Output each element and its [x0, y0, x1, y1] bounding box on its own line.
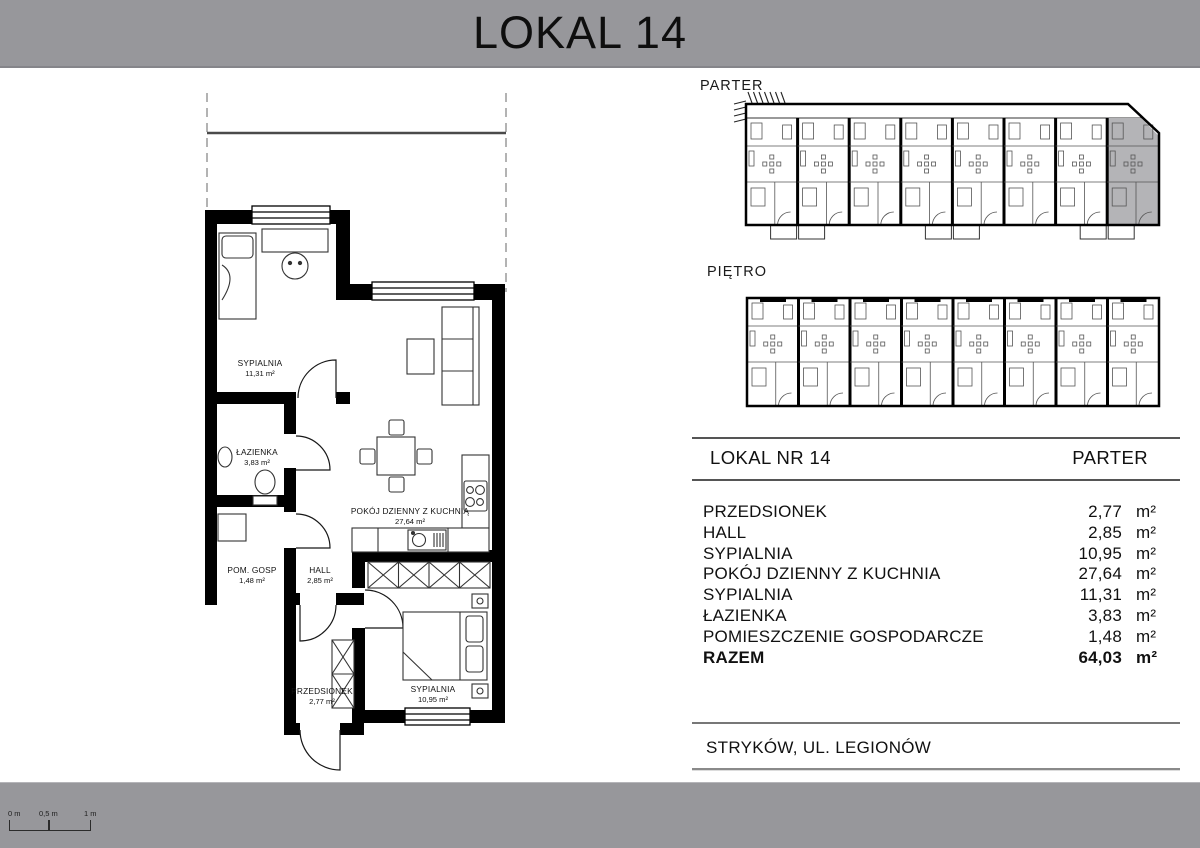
svg-text:27,64 m²: 27,64 m² [395, 517, 425, 526]
parter-overview-plan [690, 75, 1190, 260]
table-header-rule [692, 479, 1180, 481]
room-label-lazienka: ŁAZIENKA [236, 447, 278, 457]
page-title: LOKAL 14 [0, 7, 1160, 59]
room-label-przedsionek: PRZEDSIONEK [291, 686, 353, 696]
room-label-sypialnia-2: SYPIALNIA [411, 684, 456, 694]
table-row: SYPIALNIA 11,31 m² [690, 585, 1180, 606]
room-label-pom-gosp: POM. GOSP [227, 565, 277, 575]
address-top-rule [692, 722, 1180, 724]
room-label-sypialnia-1: SYPIALNIA [238, 358, 283, 368]
area-table: PRZEDSIONEK 2,77 m² HALL 2,85 m² SYPIALN… [690, 502, 1180, 668]
table-row: PRZEDSIONEK 2,77 m² [690, 502, 1180, 523]
table-row: ŁAZIENKA 3,83 m² [690, 606, 1180, 627]
address: STRYKÓW, UL. LEGIONÓW [706, 738, 931, 758]
table-header-left: LOKAL NR 14 [690, 447, 831, 469]
table-top-rule [692, 437, 1180, 439]
scale-label-0: 0 m [8, 809, 21, 818]
address-bottom-rule [692, 768, 1180, 771]
table-row: HALL 2,85 m² [690, 523, 1180, 544]
scale-bar: 0 m 0,5 m 1 m [8, 809, 118, 837]
apartment-floor-plan: SYPIALNIA 11,31 m² ŁAZIENKA 3,83 m² POM.… [150, 85, 570, 775]
floor-plan-sheet: LOKAL 14 [0, 0, 1200, 848]
table-row-total: RAZEM 64,03 m² [690, 648, 1180, 669]
svg-text:1,48 m²: 1,48 m² [239, 576, 265, 585]
svg-text:3,83 m²: 3,83 m² [244, 458, 270, 467]
svg-text:10,95 m²: 10,95 m² [418, 695, 448, 704]
table-header-right: PARTER [1072, 447, 1180, 469]
table-row: POKÓJ DZIENNY Z KUCHNIA 27,64 m² [690, 564, 1180, 585]
title-bar: LOKAL 14 [0, 0, 1200, 68]
scale-label-1: 1 m [84, 809, 97, 818]
table-row: POMIESZCZENIE GOSPODARCZE 1,48 m² [690, 627, 1180, 648]
pietro-overview-plan [690, 256, 1190, 426]
scale-ruler [9, 820, 91, 831]
svg-text:2,85 m²: 2,85 m² [307, 576, 333, 585]
parter-units [734, 92, 1159, 239]
room-label-hall: HALL [309, 565, 331, 575]
svg-text:11,31 m²: 11,31 m² [245, 369, 275, 378]
scale-label-05: 0,5 m [39, 809, 58, 818]
pietro-units [747, 298, 1159, 406]
table-row: SYPIALNIA 10,95 m² [690, 544, 1180, 565]
room-label-pokoj-dzienny: POKÓJ DZIENNY Z KUCHNIĄ [351, 506, 470, 516]
table-header: LOKAL NR 14 PARTER [690, 447, 1180, 469]
bottom-bar [0, 782, 1200, 848]
svg-text:2,77 m²: 2,77 m² [309, 697, 335, 706]
